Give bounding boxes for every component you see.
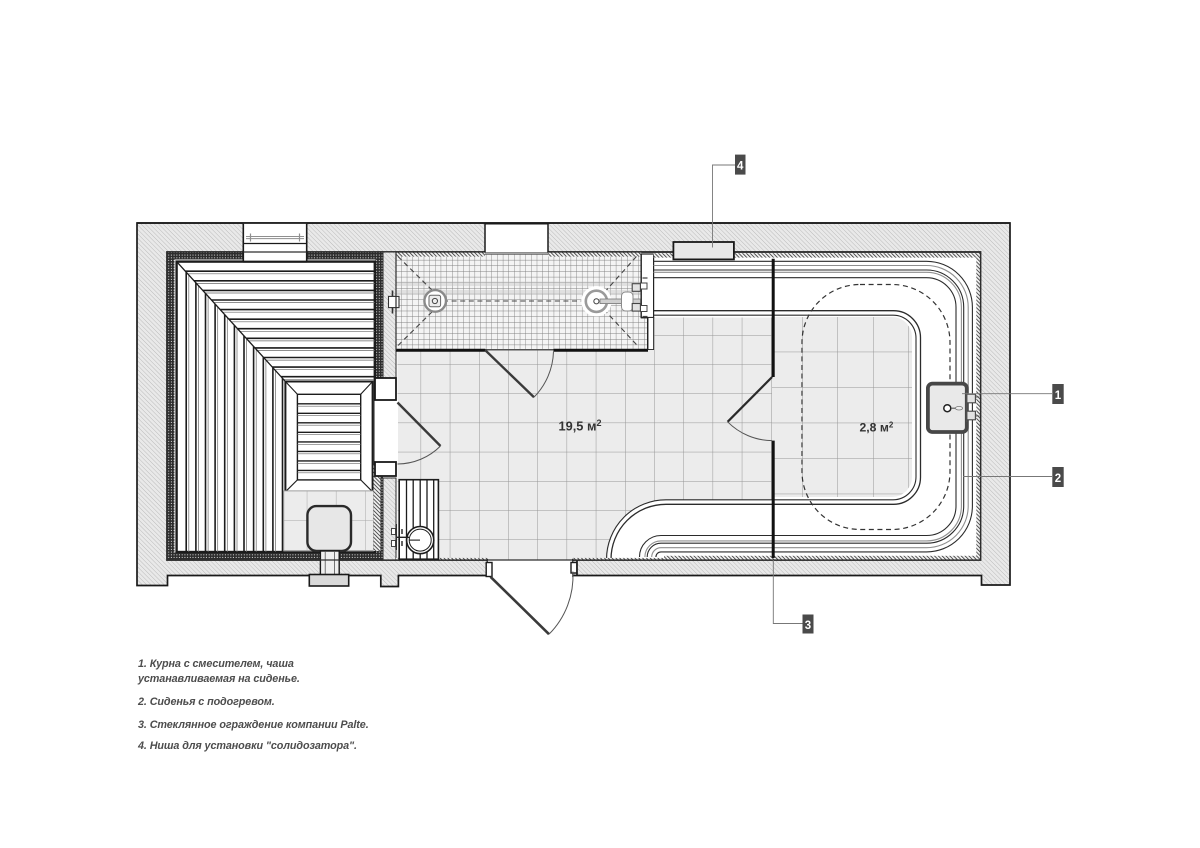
svg-text:1: 1 (1055, 390, 1062, 402)
svg-text:4: 4 (737, 161, 744, 173)
svg-text:3. Стеклянное ограждение компа: 3. Стеклянное ограждение компании Palte. (138, 719, 369, 731)
svg-text:4. Ниша для установки "солидоз: 4. Ниша для установки "солидозатора". (137, 740, 357, 752)
svg-text:2. Сиденья с подогревом.: 2. Сиденья с подогревом. (137, 696, 275, 708)
svg-text:19,5 м2: 19,5 м2 (559, 418, 602, 434)
svg-text:устанавливаемая на сиденье.: устанавливаемая на сиденье. (137, 673, 300, 685)
svg-text:2,8 м2: 2,8 м2 (860, 421, 894, 435)
svg-text:1. Курна с смесителем, чаша: 1. Курна с смесителем, чаша (138, 658, 294, 670)
svg-text:2: 2 (1055, 473, 1061, 485)
svg-text:3: 3 (805, 620, 811, 632)
